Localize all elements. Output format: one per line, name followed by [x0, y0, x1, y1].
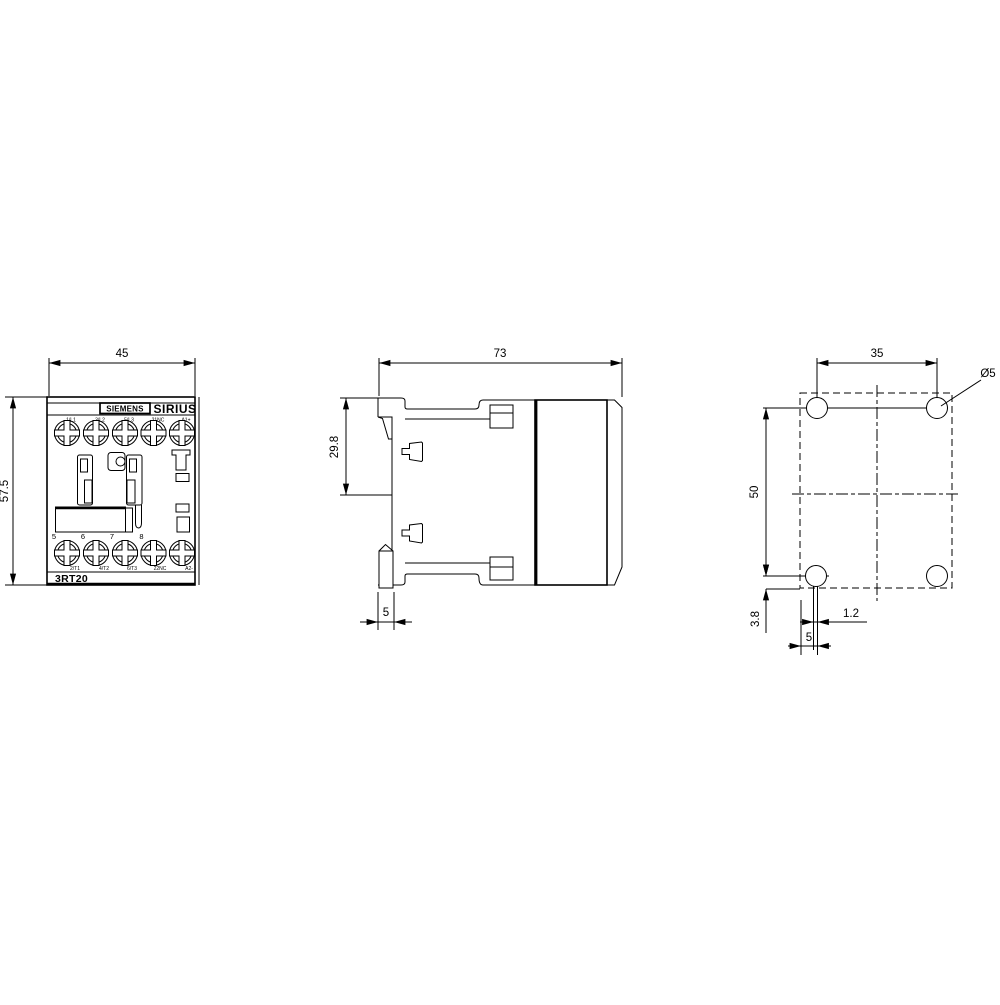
rear-cap-outline	[607, 400, 622, 585]
brand-label: SIEMENS	[106, 405, 144, 414]
dimension-label-5b: 5	[806, 632, 812, 644]
mounting-hole	[807, 398, 828, 419]
mounting-hole	[806, 566, 827, 587]
terminal-cover-top	[490, 405, 513, 428]
terminal-label: 4/T2	[99, 566, 109, 572]
slot-offset-dimension: 5	[788, 600, 831, 655]
slot-inner-window	[85, 480, 93, 503]
dimension-label-57-5: 57.5	[0, 480, 11, 502]
dimension-label-50: 50	[749, 486, 761, 499]
side-view: 73 29.8	[329, 348, 622, 630]
terminal-screw	[84, 421, 109, 446]
dimension-label-29-8: 29.8	[329, 436, 341, 458]
rail-clip-tooth	[379, 545, 393, 552]
dimension-label-3-8: 3.8	[750, 611, 762, 627]
aux-window	[177, 517, 190, 532]
rail-hook-upper	[378, 417, 392, 439]
slot-inner-window	[127, 480, 135, 503]
bottom-terminal-screws	[55, 541, 195, 566]
terminal-number: 6	[81, 532, 85, 541]
hole-spacing-v-dimension: 50	[749, 408, 766, 576]
terminal-screw	[141, 421, 166, 446]
terminal-number: 8	[139, 532, 143, 541]
magnet-housing	[535, 400, 607, 585]
terminal-screw	[141, 541, 166, 566]
nameplate-side-strip	[126, 508, 133, 532]
side-depth-dimension: 73	[379, 348, 622, 397]
terminal-screw	[55, 541, 80, 566]
nameplate-window	[56, 507, 126, 532]
terminal-number: 5	[52, 532, 56, 541]
terminal-screw	[170, 541, 195, 566]
dimension-label-73: 73	[494, 348, 507, 360]
dimension-drawing-page: 45 57.5 SIEMENS SIRIUS 1/L1 3/L2 5/L3 21…	[0, 0, 1000, 1000]
terminal-label: 22NC	[154, 566, 167, 572]
terminal-label: 2/T1	[70, 566, 80, 572]
diameter-label: Ø5	[980, 368, 995, 380]
drilling-plan: 35 Ø5 50 3.8 1.2	[749, 348, 996, 655]
rail-offset-dimension: 29.8	[329, 398, 392, 495]
guide-peg	[402, 524, 423, 544]
rail-clip-lower	[379, 551, 393, 588]
clip-depth-dimension: 5	[360, 592, 412, 630]
aux-window	[176, 504, 189, 512]
slot-width-dimension: 1.2	[800, 608, 867, 622]
terminal-screw	[84, 541, 109, 566]
terminal-cover-bottom	[490, 557, 513, 580]
side-body	[490, 400, 622, 585]
guide-peg	[402, 442, 423, 462]
aux-window	[176, 474, 189, 482]
model-label: 3RT20	[55, 573, 88, 585]
slot-inner-window	[130, 459, 137, 472]
dimension-label-1-2: 1.2	[843, 608, 859, 620]
terminal-number: 7	[110, 532, 114, 541]
edge-offset-dimension: 3.8	[750, 561, 800, 633]
slot-inner-window	[81, 459, 88, 472]
dimension-label-35: 35	[871, 348, 884, 360]
terminal-label: 6/T3	[127, 566, 137, 572]
terminal-label: A2-	[185, 566, 193, 572]
top-terminal-screws	[55, 421, 195, 446]
indicator-dot	[116, 457, 125, 466]
dimension-label-5: 5	[383, 607, 389, 619]
terminal-screw	[170, 421, 195, 446]
mounting-hole	[927, 398, 948, 419]
hole-diameter-callout: Ø5	[941, 368, 996, 406]
front-height-dimension: 57.5	[0, 397, 47, 585]
front-width-dimension: 45	[49, 348, 195, 396]
terminal-screw	[113, 421, 138, 446]
device-footprint-outline	[800, 393, 952, 588]
front-view: 45 57.5 SIEMENS SIRIUS 1/L1 3/L2 5/L3 21…	[0, 348, 199, 585]
series-label: SIRIUS	[153, 402, 196, 416]
dimension-label-45: 45	[116, 348, 129, 360]
contactor-dimension-drawing: 45 57.5 SIEMENS SIRIUS 1/L1 3/L2 5/L3 21…	[0, 0, 1000, 1000]
mounting-hole	[927, 566, 948, 587]
terminal-screw	[55, 421, 80, 446]
terminal-screw	[113, 541, 138, 566]
